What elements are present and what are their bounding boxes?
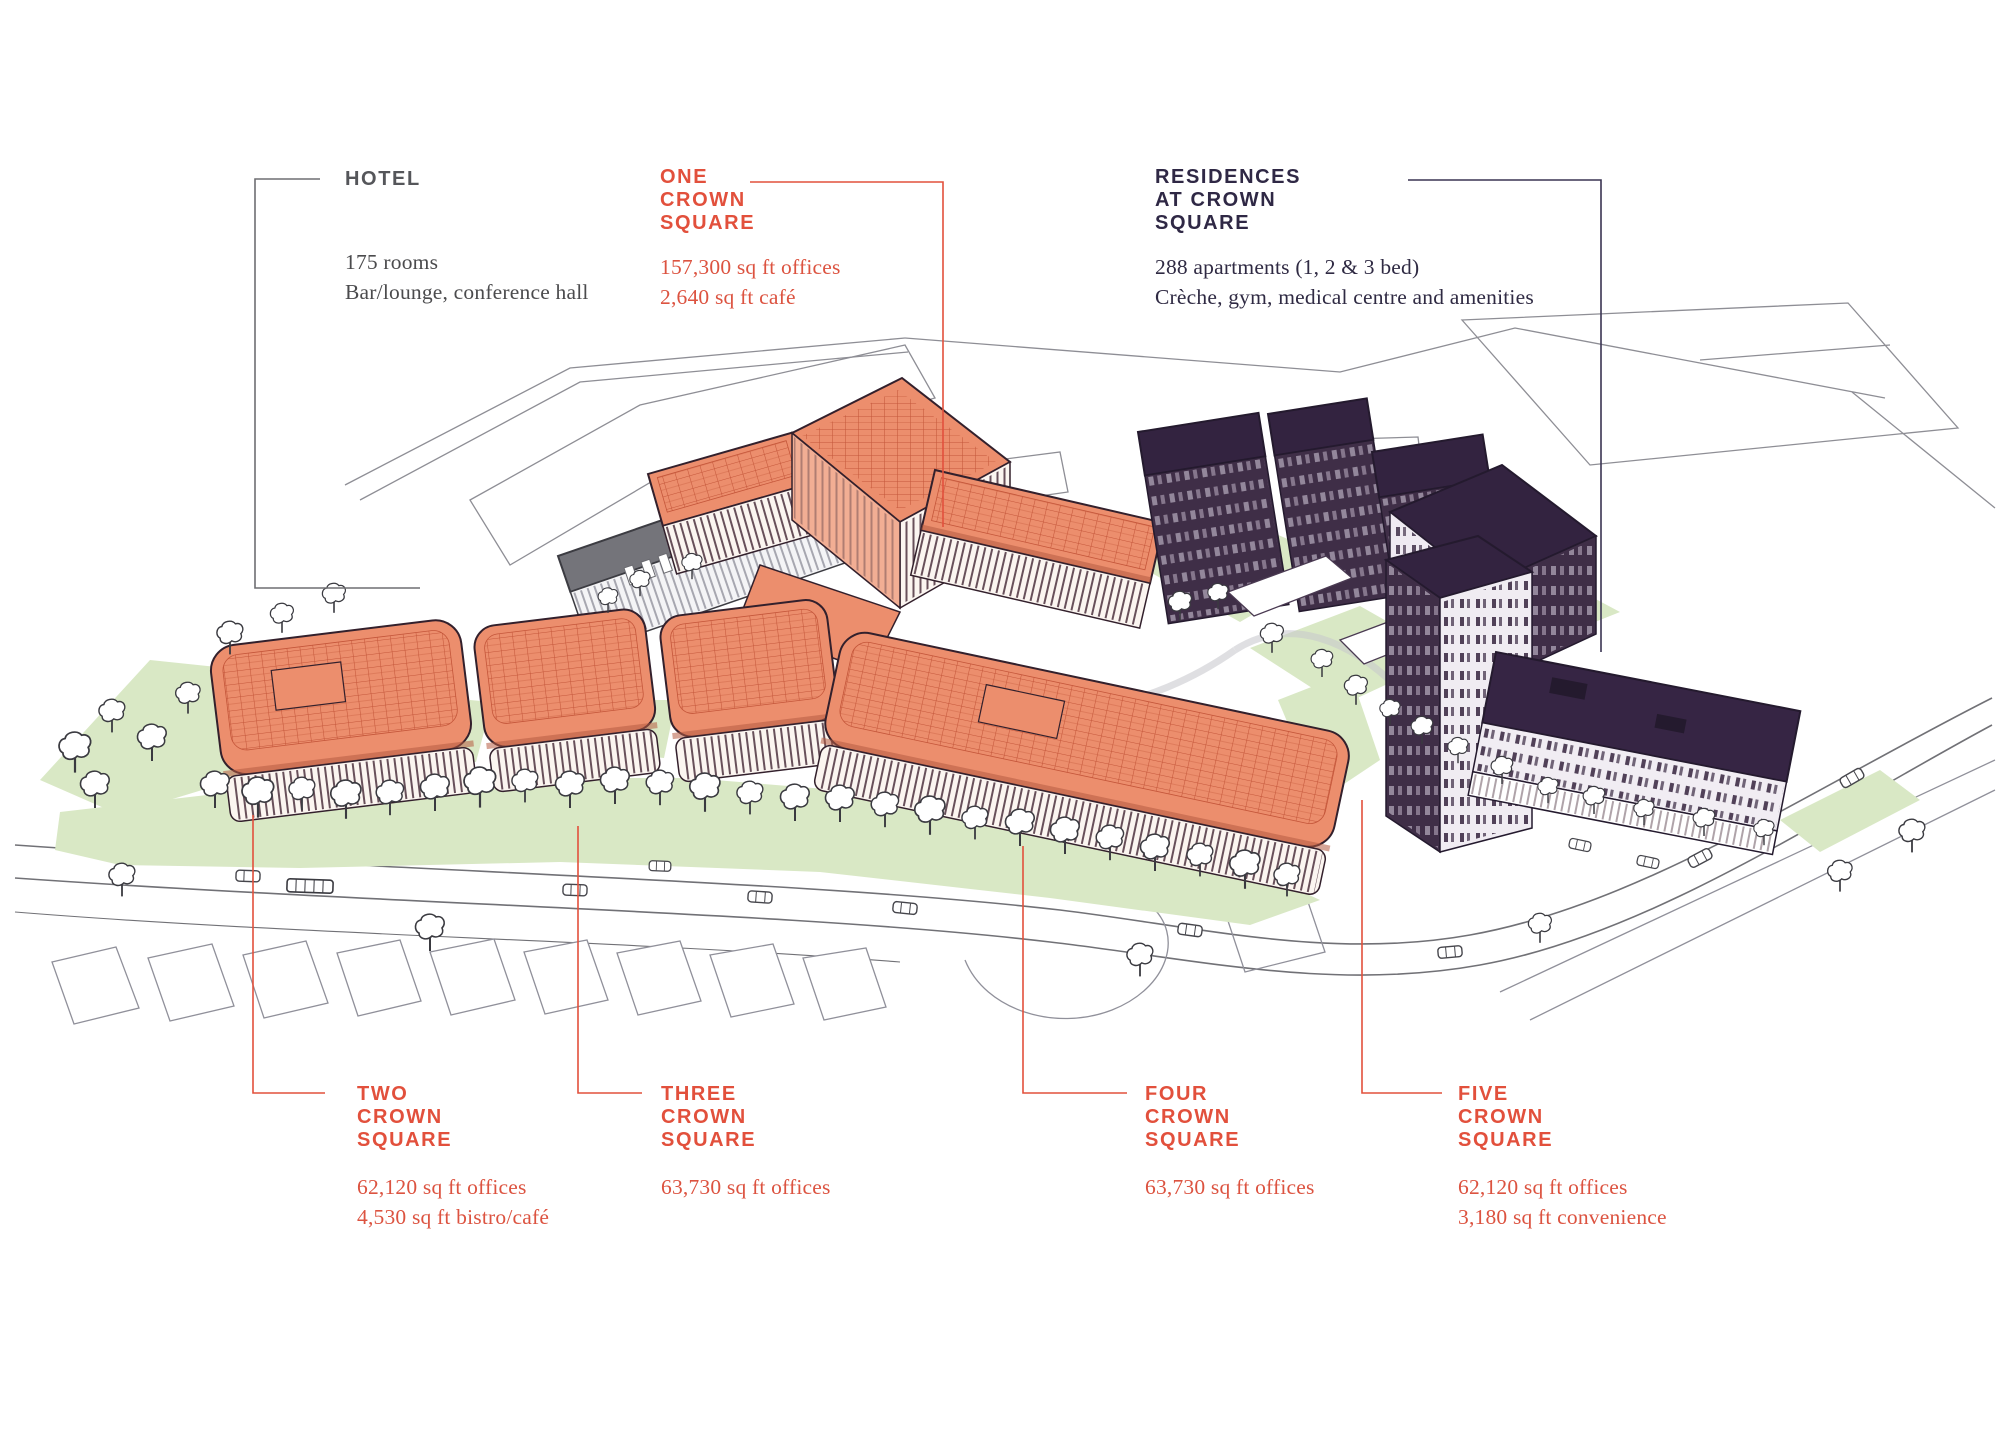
five-crown-square-label: FIVE CROWN SQUARE [1458,1083,1553,1152]
residences-label: RESIDENCES AT CROWN SQUARE [1155,166,1301,235]
three-crown-square-label: THREE CROWN SQUARE [661,1083,756,1152]
two-crown-square-details: 62,120 sq ft offices 4,530 sq ft bistro/… [357,1172,549,1232]
five-crown-square-details: 62,120 sq ft offices 3,180 sq ft conveni… [1458,1172,1667,1232]
label-line: HOTEL [345,168,421,191]
label-line: SQUARE [1458,1129,1553,1152]
label-line: AT CROWN [1155,189,1301,212]
residences-details: 288 apartments (1, 2 & 3 bed) Crèche, gy… [1155,252,1534,312]
masterplan-illustration: HOTEL 175 rooms Bar/lounge, conference h… [0,0,2000,1444]
label-line: RESIDENCES [1155,166,1301,189]
label-line: CROWN [660,189,755,212]
label-line: SQUARE [1145,1129,1240,1152]
one-crown-square-podium-building [658,598,845,783]
detail-line: 175 rooms [345,247,589,277]
label-line: CROWN [357,1106,452,1129]
label-line: CROWN [661,1106,756,1129]
one-crown-square-label: ONE CROWN SQUARE [660,166,755,235]
detail-line: 288 apartments (1, 2 & 3 bed) [1155,252,1534,282]
site-plan-drawing [0,0,2000,1444]
four-crown-square-details: 63,730 sq ft offices [1145,1172,1315,1202]
detail-line: 63,730 sq ft offices [1145,1172,1315,1202]
detail-line: 63,730 sq ft offices [661,1172,831,1202]
detail-line: 4,530 sq ft bistro/café [357,1202,549,1232]
hotel-leader-line [255,179,420,588]
label-line: FOUR [1145,1083,1240,1106]
three-crown-square-building [472,607,663,793]
three-crown-square-details: 63,730 sq ft offices [661,1172,831,1202]
four-crown-square-label: FOUR CROWN SQUARE [1145,1083,1240,1152]
label-line: SQUARE [1155,212,1301,235]
label-line: FIVE [1458,1083,1553,1106]
detail-line: 62,120 sq ft offices [1458,1172,1667,1202]
two-crown-square-label: TWO CROWN SQUARE [357,1083,452,1152]
label-line: SQUARE [660,212,755,235]
detail-line: 62,120 sq ft offices [357,1172,549,1202]
label-line: CROWN [1458,1106,1553,1129]
one-crown-square-details: 157,300 sq ft offices 2,640 sq ft café [660,252,841,312]
hotel-details: 175 rooms Bar/lounge, conference hall [345,247,589,307]
label-line: ONE [660,166,755,189]
label-line: SQUARE [357,1129,452,1152]
label-line: CROWN [1145,1106,1240,1129]
detail-line: Bar/lounge, conference hall [345,277,589,307]
label-line: THREE [661,1083,756,1106]
label-line: TWO [357,1083,452,1106]
detail-line: 3,180 sq ft convenience [1458,1202,1667,1232]
detail-line: Crèche, gym, medical centre and amenitie… [1155,282,1534,312]
detail-line: 157,300 sq ft offices [660,252,841,282]
detail-line: 2,640 sq ft café [660,282,841,312]
hotel-label: HOTEL [345,168,421,191]
label-line: SQUARE [661,1129,756,1152]
